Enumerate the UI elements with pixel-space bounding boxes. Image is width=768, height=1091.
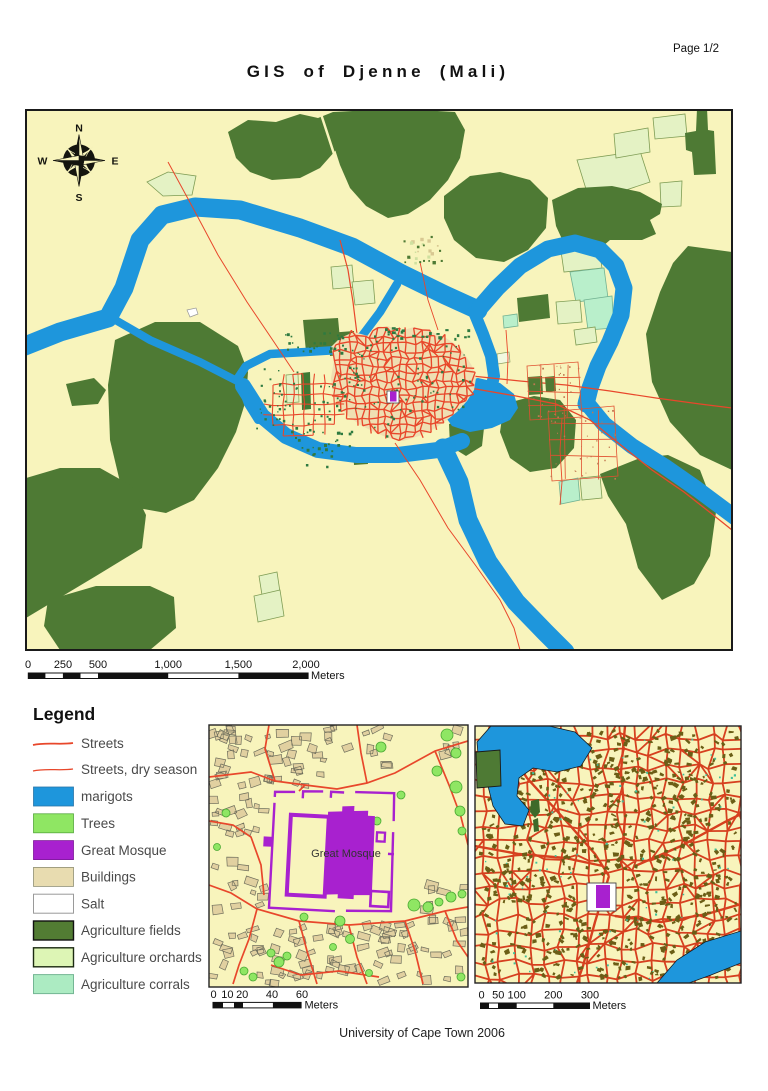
svg-text:0: 0 [478, 990, 484, 1002]
svg-text:Meters: Meters [593, 1000, 627, 1012]
svg-text:10: 10 [221, 989, 233, 1001]
svg-text:Meters: Meters [311, 670, 345, 682]
svg-text:0: 0 [25, 659, 31, 671]
svg-text:marigots: marigots [81, 789, 133, 804]
svg-text:Page 1/2: Page 1/2 [673, 43, 719, 55]
svg-text:Great Mosque: Great Mosque [81, 843, 167, 858]
svg-text:S: S [75, 192, 82, 204]
svg-text:GIS of Djenne (Mali): GIS of Djenne (Mali) [247, 62, 510, 81]
svg-text:Streets: Streets [81, 736, 124, 751]
svg-text:N: N [75, 123, 83, 135]
svg-text:Great Mosque: Great Mosque [311, 848, 381, 860]
svg-text:250: 250 [54, 659, 72, 671]
svg-text:Streets, dry season: Streets, dry season [81, 762, 197, 777]
svg-text:Legend: Legend [33, 704, 95, 724]
svg-text:Trees: Trees [81, 816, 115, 831]
svg-text:40: 40 [266, 989, 278, 1001]
svg-text:Agriculture fields: Agriculture fields [81, 923, 181, 938]
svg-text:0: 0 [210, 989, 216, 1001]
svg-text:100: 100 [508, 990, 526, 1002]
svg-text:Agriculture orchards: Agriculture orchards [81, 950, 202, 965]
svg-text:50: 50 [492, 990, 504, 1002]
svg-text:200: 200 [544, 990, 562, 1002]
svg-text:20: 20 [236, 989, 248, 1001]
svg-text:Buildings: Buildings [81, 870, 136, 885]
svg-text:Salt: Salt [81, 896, 105, 911]
svg-text:1,500: 1,500 [225, 659, 253, 671]
svg-text:E: E [111, 156, 118, 168]
svg-text:500: 500 [89, 659, 107, 671]
svg-text:W: W [38, 156, 48, 168]
svg-text:Agriculture corrals: Agriculture corrals [81, 977, 190, 992]
svg-text:Meters: Meters [305, 999, 339, 1011]
svg-text:1,000: 1,000 [154, 659, 182, 671]
svg-text:University of Cape Town 2006: University of Cape Town 2006 [339, 1026, 505, 1040]
